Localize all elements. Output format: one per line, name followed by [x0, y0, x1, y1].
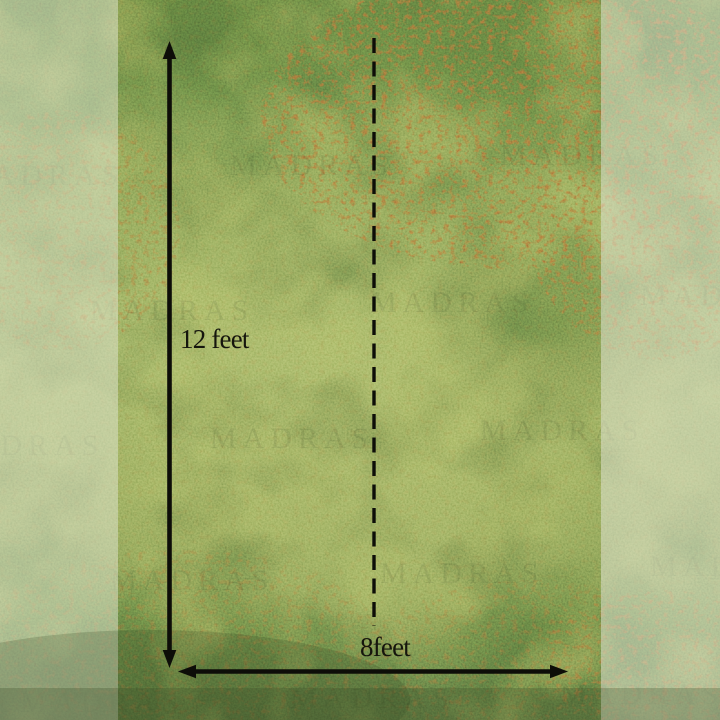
svg-text:MADRAS: MADRAS [230, 149, 394, 182]
svg-text:8feet: 8feet [360, 632, 411, 662]
svg-text:MADRAS: MADRAS [110, 564, 274, 597]
svg-text:MADRAS: MADRAS [380, 557, 544, 590]
svg-text:12 feet: 12 feet [180, 324, 250, 354]
svg-text:MADRAS: MADRAS [210, 422, 374, 455]
svg-text:MADRAS: MADRAS [370, 286, 534, 319]
